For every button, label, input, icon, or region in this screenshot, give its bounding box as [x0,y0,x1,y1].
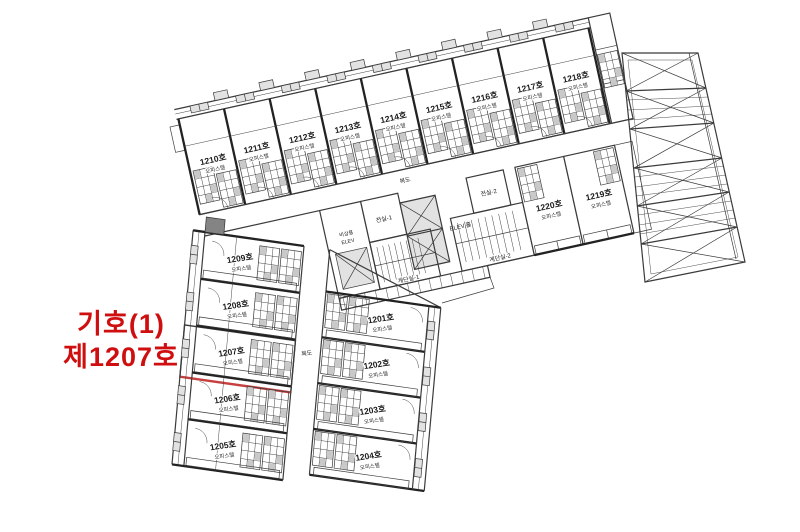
unit-label-1208-type: 오피스텔 [226,310,247,321]
unit-label-1205-type: 오피스텔 [214,450,235,461]
unit-label-1207-no: 1207호 [217,345,245,359]
corridor-lower-label: 복도 [301,350,314,359]
stair2-label: 계단실-2 [489,251,513,264]
unit-label-1206-type: 오피스텔 [218,404,239,415]
floor-plan-page: 기호(1) 제1207호 [0,0,800,532]
unit-label-1201-type: 오피스텔 [372,323,393,334]
unit-label-1208-no: 1208호 [222,298,250,312]
unit-label-1206-no: 1206호 [213,392,241,406]
unit-label-1203-no: 1203호 [359,403,387,417]
floor-plan-svg: 1210호 오피스텔 1211호 오피스텔 1212호 오피스텔 1213호 오… [0,0,800,532]
wing-connector [442,277,494,303]
unit-label-1201-no: 1201호 [367,312,395,326]
braced-frame [622,53,745,282]
unit-label-1204-type: 오피스텔 [359,461,380,472]
unit-label-1207-type: 오피스텔 [222,357,243,368]
unit-label-1205-no: 1205호 [209,439,237,453]
unit-label-1202-no: 1202호 [363,357,391,371]
unit-label-1204-no: 1204호 [354,449,382,463]
shaft-room [205,217,225,235]
lower-wing: 1209호 오피스텔 1208호 오피스텔 1207호 오피스텔 1206호 오… [171,215,445,500]
corridor-upper-label: 복도 [399,176,412,185]
unit-label-1209-no: 1209호 [226,251,254,265]
unit-label-1209-type: 오피스텔 [231,263,252,274]
unit-label-1202-type: 오피스텔 [367,369,388,380]
unit-label-1203-type: 오피스텔 [363,415,384,426]
upper-wing: 1210호 오피스텔 1211호 오피스텔 1212호 오피스텔 1213호 오… [165,5,660,338]
